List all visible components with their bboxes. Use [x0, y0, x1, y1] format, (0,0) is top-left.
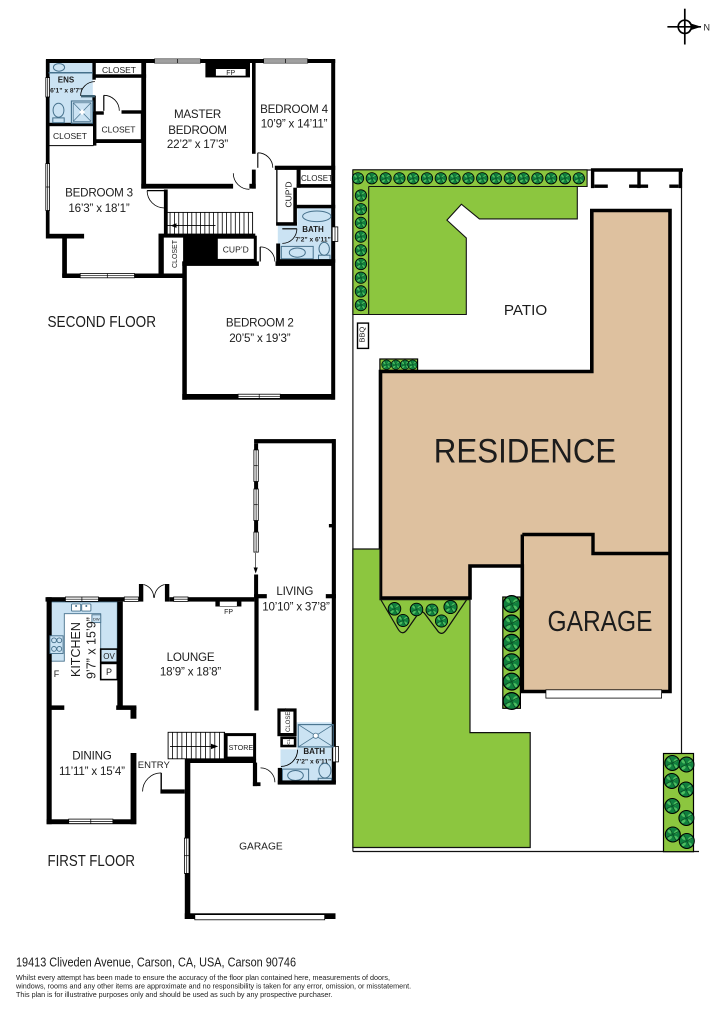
svg-text:CLOSET: CLOSET	[101, 124, 135, 134]
svg-text:CL: CL	[286, 738, 291, 744]
svg-text:10’9” x 14’11”: 10’9” x 14’11”	[261, 118, 328, 131]
svg-text:SECOND FLOOR: SECOND FLOOR	[48, 314, 157, 331]
svg-text:CLOSET: CLOSET	[301, 174, 333, 183]
svg-text:11’11” x 15’4”: 11’11” x 15’4”	[59, 765, 125, 778]
svg-text:BEDROOM 2: BEDROOM 2	[226, 317, 294, 330]
svg-text:PATIO: PATIO	[504, 302, 548, 319]
svg-text:BEDROOM: BEDROOM	[168, 124, 227, 137]
svg-text:LOUNGE: LOUNGE	[167, 651, 215, 664]
svg-text:DINING: DINING	[72, 750, 112, 763]
svg-text:GARAGE: GARAGE	[548, 606, 653, 638]
svg-text:10’10” x 37’8”: 10’10” x 37’8”	[262, 601, 330, 614]
svg-text:This plan is for illustrative: This plan is for illustrative purposes o…	[16, 990, 332, 999]
svg-text:BATH: BATH	[303, 747, 325, 756]
svg-text:OV: OV	[103, 652, 115, 661]
svg-text:ENTRY: ENTRY	[138, 760, 171, 771]
svg-text:BEDROOM 4: BEDROOM 4	[260, 103, 329, 116]
svg-text:16’3” x 18’1”: 16’3” x 18’1”	[68, 202, 130, 215]
svg-text:BEDROOM 3: BEDROOM 3	[65, 187, 133, 200]
svg-text:19413 Cliveden Avenue, Carson,: 19413 Cliveden Avenue, Carson, CA, USA, …	[16, 956, 296, 970]
svg-text:N: N	[704, 23, 711, 33]
svg-text:BBQ: BBQ	[358, 326, 367, 342]
svg-text:MASTER: MASTER	[174, 108, 221, 121]
svg-text:CLOSET: CLOSET	[102, 65, 136, 75]
svg-text:9’7” x 15’9”: 9’7” x 15’9”	[85, 617, 99, 679]
svg-text:STORE: STORE	[229, 743, 254, 752]
svg-text:ENS: ENS	[58, 75, 75, 84]
svg-text:CLOSET: CLOSET	[53, 131, 87, 141]
svg-text:LIVING: LIVING	[276, 585, 313, 598]
svg-text:18’9” x 18’8”: 18’9” x 18’8”	[160, 666, 222, 679]
svg-text:FP: FP	[224, 609, 233, 616]
svg-text:6’1” x 8’7”: 6’1” x 8’7”	[50, 88, 82, 95]
svg-text:P: P	[106, 667, 112, 677]
svg-text:FP: FP	[226, 70, 235, 77]
svg-text:CLOSET: CLOSET	[286, 708, 292, 732]
svg-text:BATH: BATH	[302, 225, 324, 234]
svg-text:22’2” x 17’3”: 22’2” x 17’3”	[167, 138, 229, 151]
svg-text:GARAGE: GARAGE	[239, 842, 283, 853]
svg-text:KITCHEN: KITCHEN	[69, 622, 83, 677]
svg-text:RESIDENCE: RESIDENCE	[434, 433, 617, 471]
svg-text:CUP’D: CUP’D	[223, 245, 249, 255]
svg-text:CUP’D: CUP’D	[284, 182, 294, 208]
svg-text:FIRST FLOOR: FIRST FLOOR	[48, 853, 136, 870]
svg-text:F: F	[54, 669, 60, 679]
svg-text:CLOSET: CLOSET	[172, 239, 179, 268]
svg-text:20’5” x 19’3”: 20’5” x 19’3”	[229, 332, 291, 345]
